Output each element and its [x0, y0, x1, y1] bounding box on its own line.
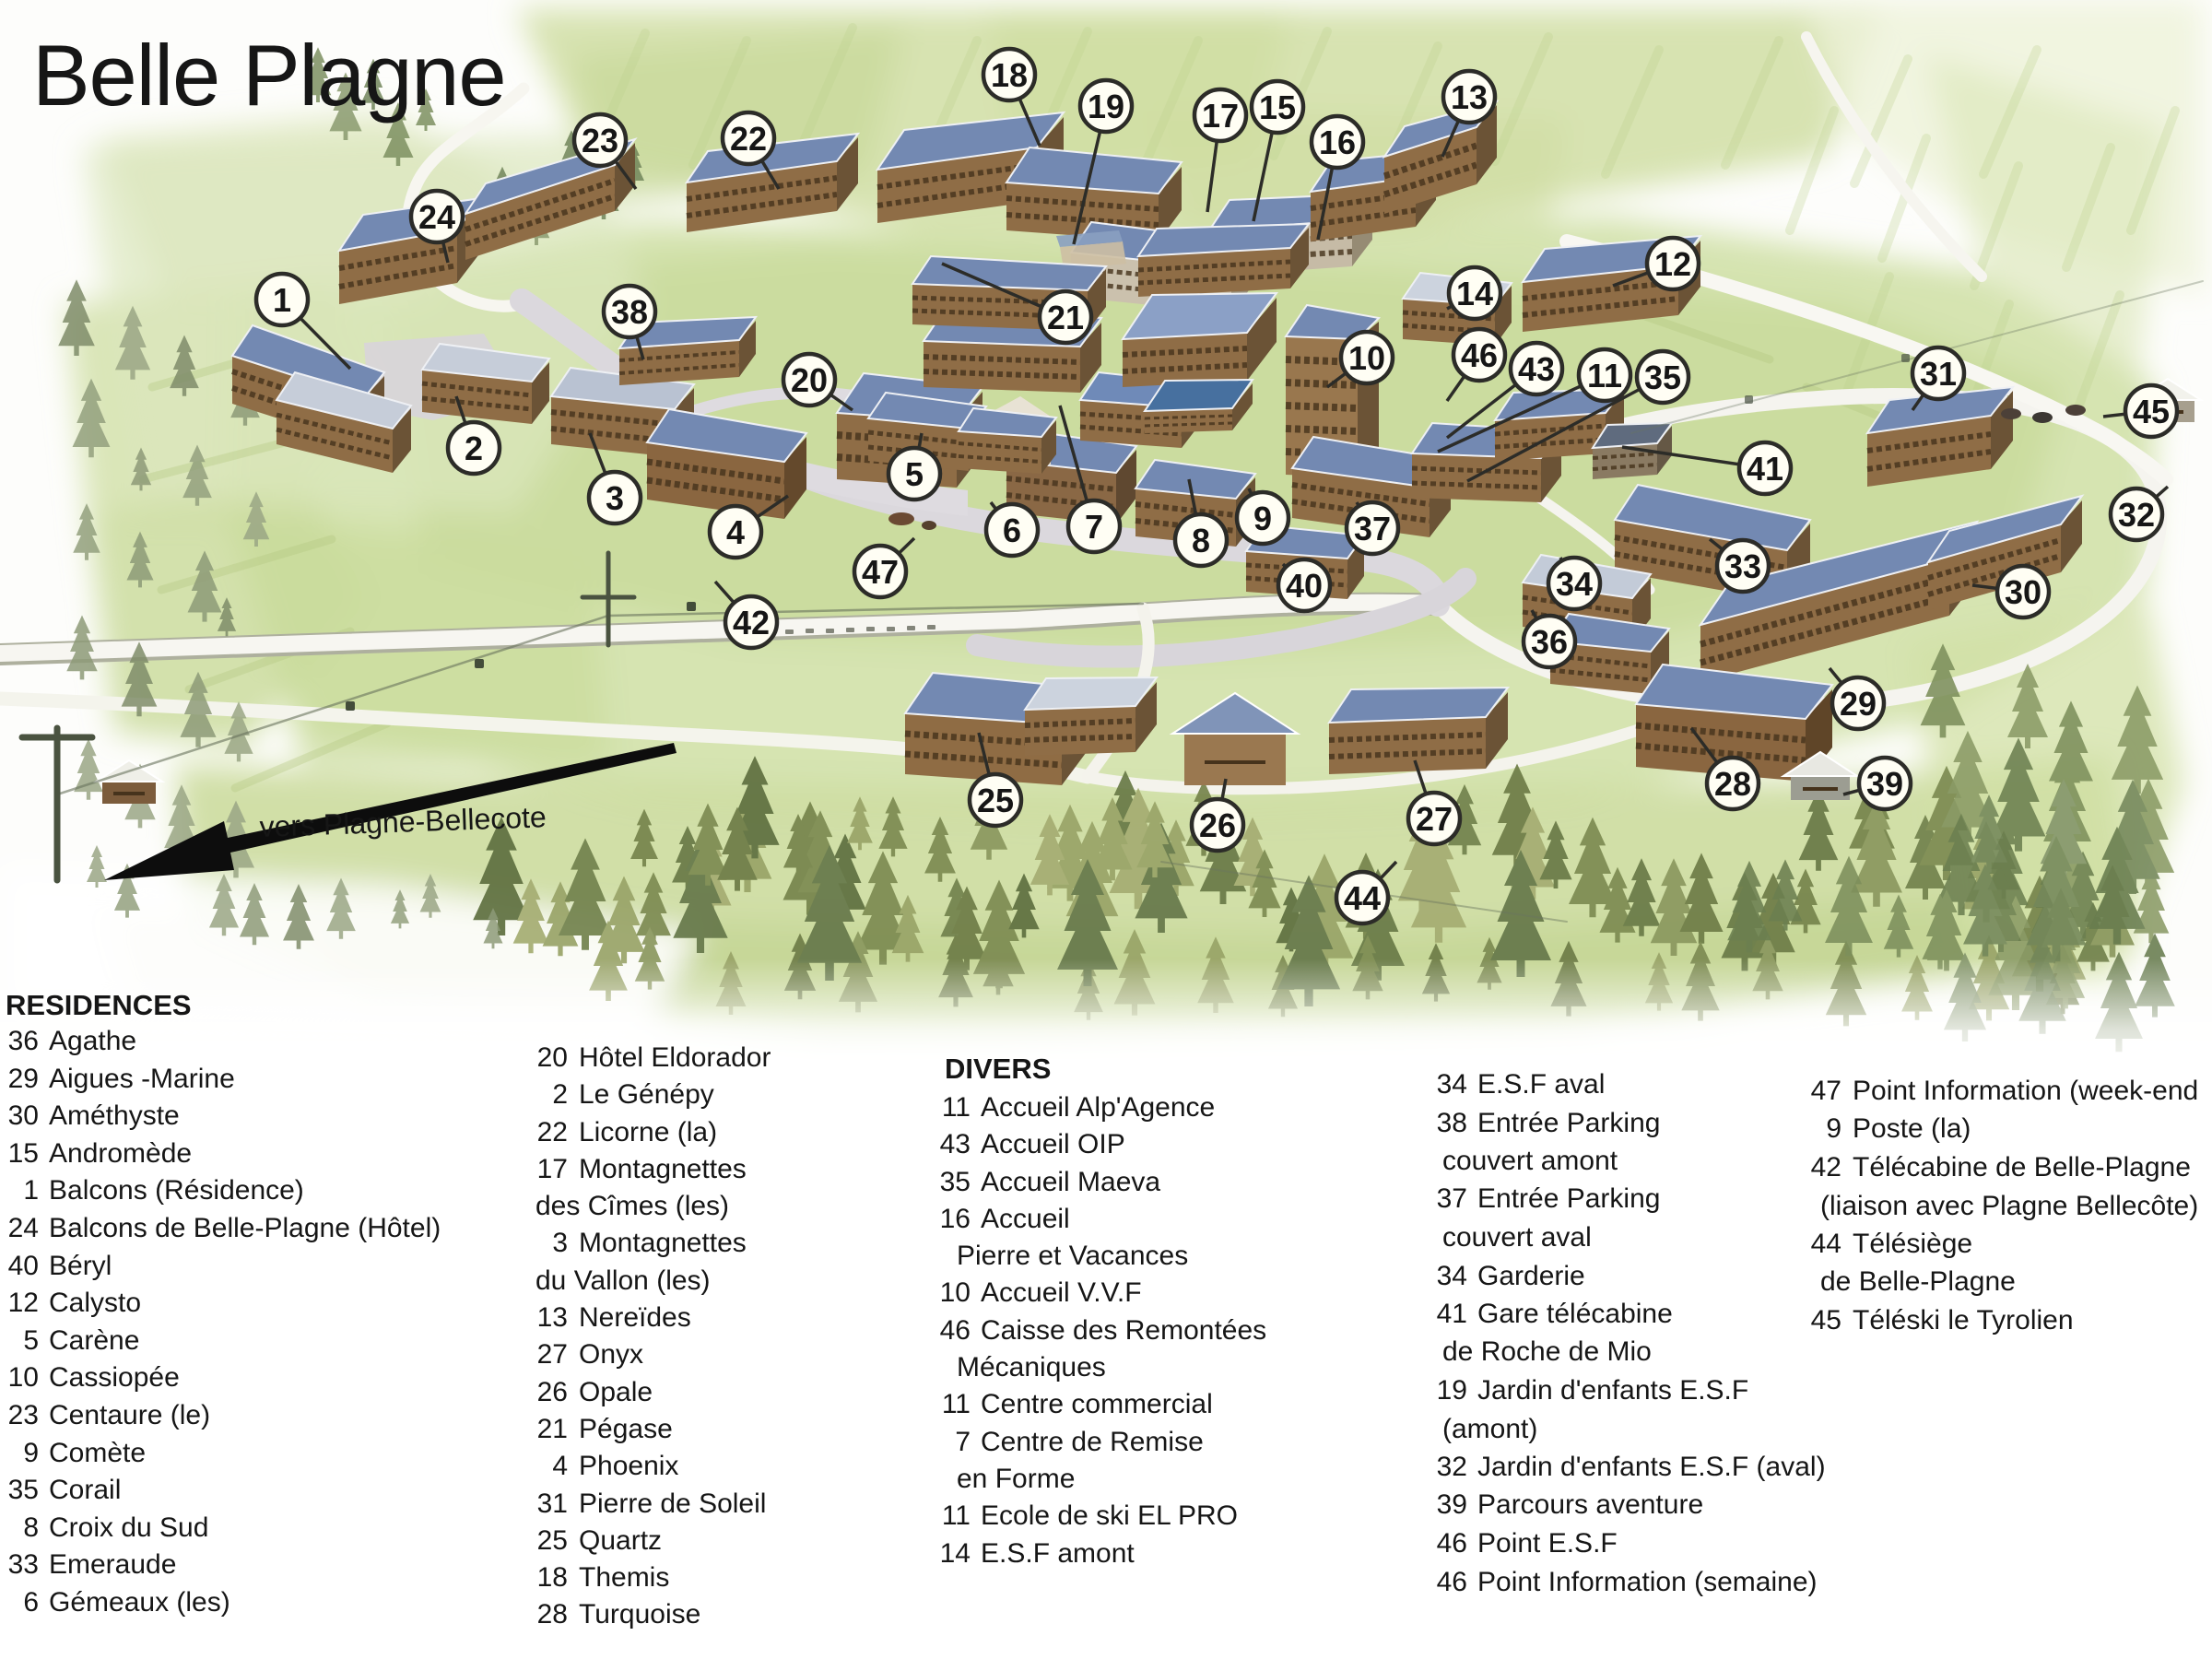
svg-text:30: 30: [8, 1100, 39, 1131]
svg-text:38: 38: [611, 293, 648, 331]
svg-text:34: 34: [1437, 1261, 1467, 1291]
svg-text:Turquoise: Turquoise: [579, 1599, 700, 1630]
svg-text:Jardin d'enfants E.S.F: Jardin d'enfants E.S.F: [1477, 1375, 1748, 1406]
svg-text:Carène: Carène: [49, 1325, 139, 1356]
svg-text:3: 3: [552, 1228, 568, 1258]
svg-text:8: 8: [1192, 522, 1210, 559]
svg-text:3: 3: [606, 479, 624, 517]
svg-text:Montagnettes: Montagnettes: [579, 1228, 747, 1258]
svg-text:40: 40: [1286, 567, 1323, 605]
svg-text:DIVERS: DIVERS: [945, 1053, 1051, 1085]
svg-text:42: 42: [1811, 1152, 1841, 1182]
svg-text:1: 1: [23, 1175, 39, 1206]
svg-text:Quartz: Quartz: [579, 1525, 662, 1556]
svg-text:Centre commercial: Centre commercial: [981, 1389, 1213, 1419]
svg-text:22: 22: [730, 120, 767, 158]
svg-text:Garderie: Garderie: [1477, 1261, 1585, 1291]
svg-text:Entrée Parking: Entrée Parking: [1477, 1183, 1660, 1214]
svg-text:14: 14: [1456, 275, 1493, 312]
svg-text:4: 4: [726, 513, 745, 551]
svg-text:Gémeaux (les): Gémeaux (les): [49, 1587, 230, 1618]
svg-text:21: 21: [1047, 299, 1084, 336]
svg-text:de Belle-Plagne: de Belle-Plagne: [1820, 1266, 2016, 1297]
svg-text:42: 42: [733, 604, 770, 641]
svg-text:47: 47: [1811, 1076, 1841, 1106]
svg-text:37: 37: [1437, 1183, 1467, 1214]
svg-text:Ecole de ski EL PRO: Ecole de ski EL PRO: [981, 1500, 1238, 1531]
svg-text:20: 20: [791, 361, 828, 399]
svg-text:Comète: Comète: [49, 1438, 146, 1468]
svg-text:32: 32: [2118, 496, 2155, 534]
svg-text:Calysto: Calysto: [49, 1288, 141, 1318]
svg-text:9: 9: [1253, 500, 1272, 537]
svg-text:47: 47: [862, 553, 899, 591]
svg-text:10: 10: [940, 1277, 971, 1308]
svg-text:41: 41: [1437, 1299, 1467, 1329]
svg-text:36: 36: [8, 1026, 39, 1056]
svg-text:22: 22: [537, 1117, 568, 1147]
svg-text:19: 19: [1088, 88, 1124, 125]
svg-text:E.S.F amont: E.S.F amont: [981, 1538, 1135, 1569]
svg-text:37: 37: [1354, 510, 1391, 547]
svg-text:6: 6: [1003, 512, 1021, 549]
svg-text:Caisse des Remontées: Caisse des Remontées: [981, 1315, 1266, 1346]
svg-text:Belle Plagne: Belle Plagne: [32, 27, 505, 124]
svg-text:Poste (la): Poste (la): [1853, 1113, 1971, 1144]
svg-text:Opale: Opale: [579, 1377, 653, 1407]
svg-text:2: 2: [552, 1079, 568, 1110]
svg-text:18: 18: [991, 56, 1028, 94]
svg-text:23: 23: [8, 1400, 39, 1430]
svg-text:30: 30: [2005, 573, 2041, 611]
svg-text:du Vallon (les): du Vallon (les): [535, 1265, 711, 1296]
svg-text:12: 12: [1654, 245, 1691, 283]
svg-text:10: 10: [1348, 339, 1385, 377]
svg-text:11: 11: [1587, 357, 1622, 394]
svg-text:23: 23: [582, 122, 618, 159]
svg-text:Themis: Themis: [579, 1562, 669, 1593]
svg-text:des Cîmes (les): des Cîmes (les): [535, 1191, 729, 1221]
svg-text:couvert amont: couvert amont: [1442, 1146, 1618, 1176]
svg-text:Centaure (le): Centaure (le): [49, 1400, 210, 1430]
svg-text:13: 13: [537, 1302, 568, 1333]
svg-text:40: 40: [8, 1251, 39, 1281]
svg-text:11: 11: [942, 1500, 971, 1531]
svg-text:45: 45: [1811, 1305, 1841, 1335]
svg-text:27: 27: [537, 1339, 568, 1370]
svg-text:5: 5: [23, 1325, 39, 1356]
svg-text:Pierre et Vacances: Pierre et Vacances: [957, 1241, 1188, 1271]
svg-text:24: 24: [418, 198, 455, 236]
svg-text:46: 46: [1437, 1567, 1467, 1597]
svg-text:9: 9: [23, 1438, 39, 1468]
svg-text:34: 34: [1556, 565, 1593, 603]
svg-text:Hôtel Eldorador: Hôtel Eldorador: [579, 1042, 771, 1073]
svg-text:7: 7: [1085, 508, 1103, 546]
svg-text:de Roche de Mio: de Roche de Mio: [1442, 1336, 1652, 1367]
svg-text:Nereïdes: Nereïdes: [579, 1302, 691, 1333]
svg-text:20: 20: [537, 1042, 568, 1073]
svg-text:46: 46: [1461, 336, 1498, 374]
svg-text:39: 39: [1437, 1489, 1467, 1520]
svg-text:(liaison avec Plagne Bellecôte: (liaison avec Plagne Bellecôte): [1820, 1191, 2198, 1221]
svg-text:35: 35: [8, 1475, 39, 1505]
svg-text:Licorne (la): Licorne (la): [579, 1117, 717, 1147]
svg-text:9: 9: [1826, 1113, 1841, 1144]
svg-text:15: 15: [1259, 88, 1296, 126]
svg-text:19: 19: [1437, 1375, 1467, 1406]
svg-text:28: 28: [1714, 765, 1751, 803]
svg-text:Balcons de Belle-Plagne (Hôtel: Balcons de Belle-Plagne (Hôtel): [49, 1213, 441, 1243]
svg-text:33: 33: [1724, 547, 1761, 585]
svg-text:12: 12: [8, 1288, 39, 1318]
svg-text:Corail: Corail: [49, 1475, 121, 1505]
svg-text:13: 13: [1451, 78, 1488, 116]
svg-text:Andromède: Andromède: [49, 1138, 192, 1169]
svg-text:25: 25: [977, 782, 1014, 819]
svg-text:Améthyste: Améthyste: [49, 1100, 180, 1131]
svg-text:15: 15: [8, 1138, 39, 1169]
svg-text:2: 2: [465, 429, 483, 467]
svg-text:11: 11: [942, 1092, 971, 1123]
svg-text:1: 1: [273, 281, 291, 319]
svg-text:16: 16: [1319, 124, 1356, 161]
svg-text:44: 44: [1344, 879, 1381, 917]
svg-text:46: 46: [1437, 1528, 1467, 1559]
svg-text:36: 36: [1531, 623, 1568, 661]
svg-text:43: 43: [940, 1129, 971, 1159]
svg-text:10: 10: [8, 1362, 39, 1393]
svg-text:Croix du Sud: Croix du Sud: [49, 1512, 208, 1543]
svg-text:Accueil Maeva: Accueil Maeva: [981, 1167, 1160, 1197]
svg-text:29: 29: [8, 1064, 39, 1094]
svg-text:en Forme: en Forme: [957, 1464, 1075, 1494]
svg-text:Point Information (week-end: Point Information (week-end: [1853, 1076, 2198, 1106]
svg-text:Cassiopée: Cassiopée: [49, 1362, 180, 1393]
svg-text:Accueil V.V.F: Accueil V.V.F: [981, 1277, 1142, 1308]
svg-text:Onyx: Onyx: [579, 1339, 643, 1370]
svg-text:Mécaniques: Mécaniques: [957, 1352, 1106, 1382]
svg-text:(amont): (amont): [1442, 1414, 1537, 1444]
svg-text:Aigues -Marine: Aigues -Marine: [49, 1064, 235, 1094]
svg-text:Gare télécabine: Gare télécabine: [1477, 1299, 1673, 1329]
svg-text:41: 41: [1747, 450, 1783, 488]
svg-text:14: 14: [940, 1538, 971, 1569]
svg-text:27: 27: [1416, 800, 1453, 838]
svg-text:28: 28: [537, 1599, 568, 1630]
svg-text:Téléski le Tyrolien: Téléski le Tyrolien: [1853, 1305, 2074, 1335]
svg-text:45: 45: [2133, 393, 2170, 430]
svg-text:Centre de Remise: Centre de Remise: [981, 1427, 1204, 1457]
svg-text:Montagnettes: Montagnettes: [579, 1154, 747, 1184]
svg-text:43: 43: [1518, 350, 1555, 388]
svg-text:32: 32: [1437, 1452, 1467, 1482]
svg-text:5: 5: [905, 455, 924, 493]
svg-text:couvert aval: couvert aval: [1442, 1222, 1592, 1253]
svg-text:24: 24: [8, 1213, 39, 1243]
svg-text:38: 38: [1437, 1108, 1467, 1138]
svg-text:33: 33: [8, 1549, 39, 1580]
svg-text:Télécabine de Belle-Plagne: Télécabine de Belle-Plagne: [1853, 1152, 2191, 1182]
svg-text:11: 11: [942, 1389, 971, 1419]
svg-text:Parcours aventure: Parcours aventure: [1477, 1489, 1703, 1520]
svg-text:Jardin d'enfants E.S.F (aval): Jardin d'enfants E.S.F (aval): [1477, 1452, 1826, 1482]
svg-text:26: 26: [537, 1377, 568, 1407]
svg-text:25: 25: [537, 1525, 568, 1556]
svg-text:31: 31: [1920, 355, 1957, 393]
svg-text:RESIDENCES: RESIDENCES: [6, 989, 192, 1021]
svg-text:Point Information (semaine): Point Information (semaine): [1477, 1567, 1818, 1597]
svg-text:8: 8: [23, 1512, 39, 1543]
svg-text:29: 29: [1840, 685, 1877, 723]
svg-text:Accueil OIP: Accueil OIP: [981, 1129, 1125, 1159]
svg-text:E.S.F aval: E.S.F aval: [1477, 1069, 1605, 1100]
svg-text:Entrée Parking: Entrée Parking: [1477, 1108, 1660, 1138]
svg-text:Le Génépy: Le Génépy: [579, 1079, 714, 1110]
svg-text:Agathe: Agathe: [49, 1026, 136, 1056]
svg-text:Phoenix: Phoenix: [579, 1451, 678, 1481]
svg-text:46: 46: [940, 1315, 971, 1346]
svg-text:Pierre de Soleil: Pierre de Soleil: [579, 1488, 766, 1519]
svg-text:Pégase: Pégase: [579, 1414, 673, 1444]
svg-text:34: 34: [1437, 1069, 1467, 1100]
svg-text:26: 26: [1199, 806, 1236, 844]
svg-text:17: 17: [537, 1154, 568, 1184]
svg-text:Télésiège: Télésiège: [1853, 1229, 1972, 1259]
svg-text:17: 17: [1202, 97, 1239, 135]
svg-text:31: 31: [537, 1488, 568, 1519]
svg-text:7: 7: [955, 1427, 971, 1457]
svg-text:35: 35: [1644, 359, 1681, 396]
svg-text:Accueil Alp'Agence: Accueil Alp'Agence: [981, 1092, 1215, 1123]
svg-text:18: 18: [537, 1562, 568, 1593]
svg-text:39: 39: [1866, 765, 1903, 803]
svg-text:Emeraude: Emeraude: [49, 1549, 176, 1580]
svg-text:4: 4: [552, 1451, 568, 1481]
svg-text:21: 21: [537, 1414, 568, 1444]
svg-text:6: 6: [23, 1587, 39, 1618]
svg-text:Accueil: Accueil: [981, 1204, 1070, 1234]
svg-text:Béryl: Béryl: [49, 1251, 112, 1281]
svg-text:35: 35: [940, 1167, 971, 1197]
svg-text:44: 44: [1811, 1229, 1841, 1259]
svg-text:Balcons (Résidence): Balcons (Résidence): [49, 1175, 304, 1206]
svg-text:16: 16: [940, 1204, 971, 1234]
svg-text:Point E.S.F: Point E.S.F: [1477, 1528, 1618, 1559]
